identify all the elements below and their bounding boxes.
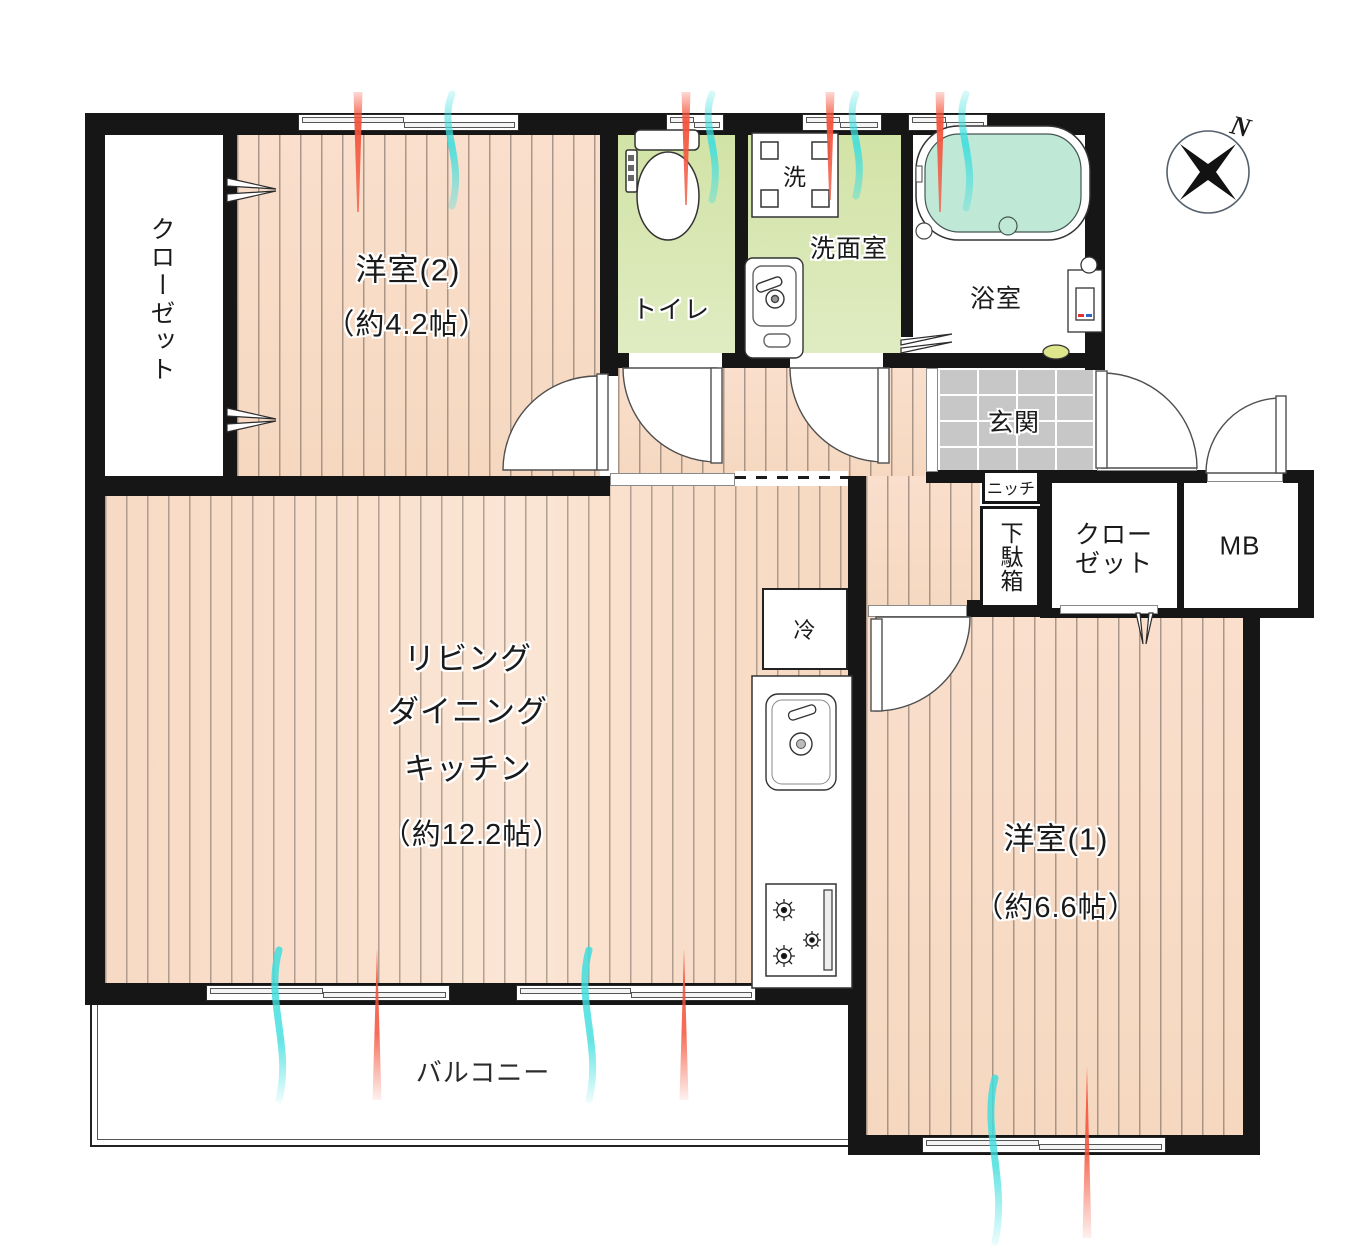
door-arc-bedroom1 — [876, 617, 970, 711]
door-leaf-bedroom1 — [871, 619, 882, 711]
washer-label: 洗 — [783, 158, 807, 192]
door-leaf-washroom — [878, 368, 889, 463]
shower-unit-icon — [1068, 257, 1102, 332]
fridge-label: 冷 — [793, 613, 816, 645]
kitchen-icons — [752, 589, 852, 988]
bathroom-label: 浴室 — [970, 279, 1022, 315]
door-arc-bedroom2 — [503, 376, 597, 470]
closet-left-label: クローゼット — [143, 216, 179, 384]
hall-closet-label-2: ゼット — [1075, 544, 1153, 580]
bedroom2-size: （約4.2帖） — [325, 301, 488, 343]
balcony-label: バルコニー — [416, 1053, 550, 1090]
door-arc-toilet — [623, 368, 717, 462]
plan-symbols — [0, 0, 1356, 1248]
folding-door-icon — [227, 421, 276, 432]
door-leaf-toilet — [711, 368, 722, 463]
folding-door-icon-closet — [1136, 613, 1143, 644]
folding-door-icon — [227, 178, 276, 189]
toilet-label: トイレ — [632, 290, 710, 326]
bath-stool-icon — [1043, 345, 1069, 359]
vanity-sink-icon — [745, 258, 803, 358]
niche-label: ニッチ — [987, 475, 1035, 499]
ldk-label-1: リビング — [404, 634, 532, 679]
door-leaf-entrance — [1096, 371, 1107, 468]
ldk-label-2: ダイニング — [388, 687, 548, 732]
door-leaf-meter-box — [1276, 396, 1286, 473]
door-arc-entrance — [1102, 373, 1197, 468]
door-leaf-bedroom2 — [597, 374, 608, 470]
bedroom1-size: （約6.6帖） — [974, 884, 1137, 926]
meter-box-label: MB — [1220, 531, 1261, 562]
ldk-size: （約12.2帖） — [382, 811, 562, 853]
shoe-cabinet-label: 下駄箱 — [993, 521, 1027, 593]
folding-door-icon-closet — [1146, 613, 1153, 644]
compass-icon — [1167, 131, 1249, 213]
folding-door-icon — [227, 408, 276, 419]
door-arc-washroom — [790, 368, 884, 462]
door-arc-meter-box — [1206, 398, 1281, 473]
bedroom1-label: 洋室(1) — [1004, 814, 1109, 859]
floor-plan: クローゼット 洋室(2) （約4.2帖） トイレ 洗 洗面室 浴室 玄関 ニッチ… — [0, 0, 1356, 1248]
bedroom2-label: 洋室(2) — [356, 245, 461, 290]
ldk-label-3: キッチン — [404, 744, 532, 789]
folding-door-icon — [227, 191, 276, 202]
washroom-label: 洗面室 — [810, 229, 888, 265]
entrance-label: 玄関 — [988, 403, 1040, 439]
